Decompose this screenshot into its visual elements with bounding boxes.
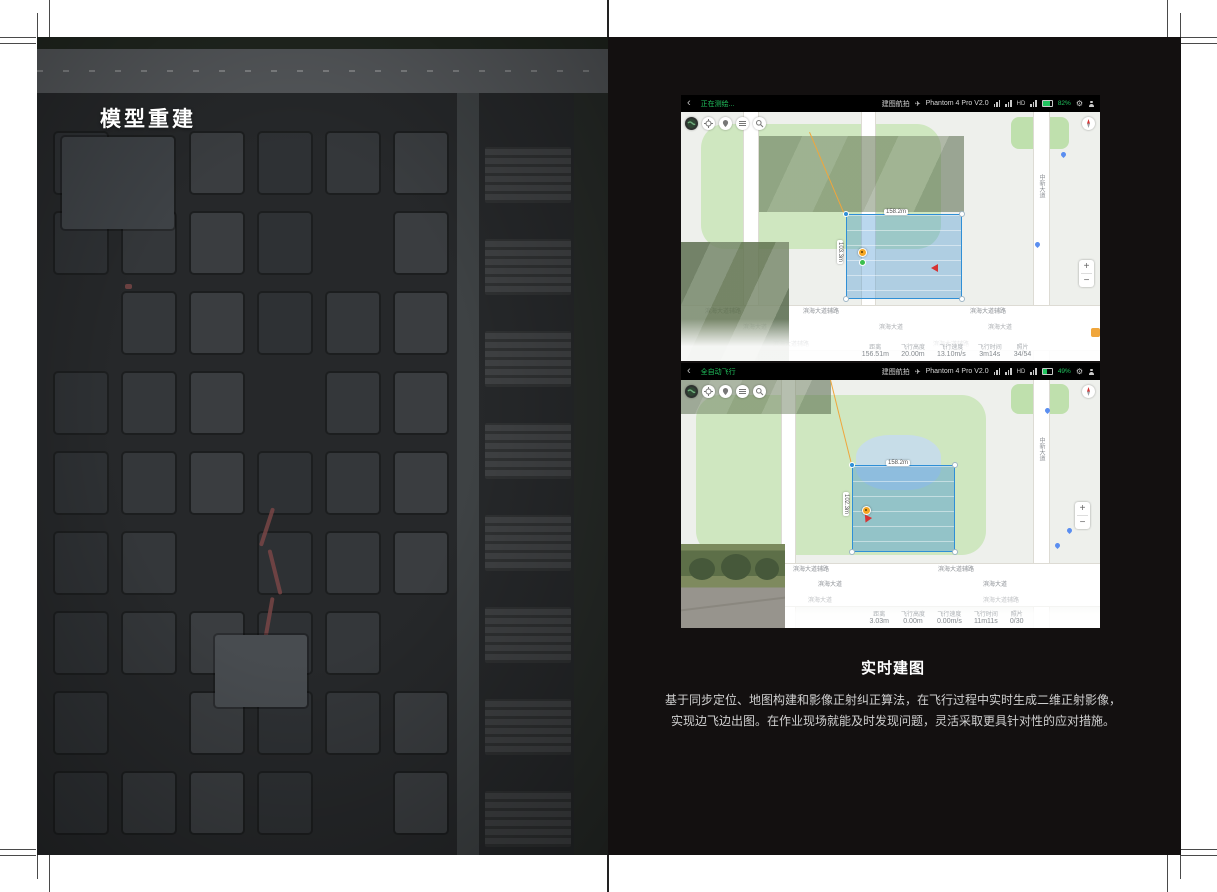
home-point-icon bbox=[859, 259, 866, 266]
poi-pin-icon bbox=[1054, 542, 1061, 549]
crop-mark bbox=[1181, 37, 1217, 38]
road-label: 滨海大道辅路 bbox=[791, 564, 831, 573]
survey-height-label: 102.3m bbox=[843, 492, 849, 516]
back-icon[interactable]: ‹ bbox=[687, 98, 691, 109]
account-icon[interactable] bbox=[1088, 101, 1094, 107]
aircraft-icon: ✈ bbox=[915, 368, 921, 376]
crop-mark bbox=[1181, 849, 1217, 850]
survey-height-label: 103.3m bbox=[837, 240, 843, 264]
map-toolbar bbox=[685, 385, 766, 398]
survey-corner-handle[interactable] bbox=[952, 549, 958, 555]
rc-signal-icon bbox=[1005, 100, 1012, 107]
locate-icon[interactable] bbox=[702, 385, 715, 398]
list-icon[interactable] bbox=[736, 117, 749, 130]
map-toolbar bbox=[685, 117, 766, 130]
mission-status: 全自动飞行 bbox=[701, 367, 736, 377]
mission-type-label: 建图航拍 bbox=[882, 99, 910, 109]
map-layers-icon[interactable] bbox=[685, 385, 698, 398]
aircraft-icon: ✈ bbox=[915, 100, 921, 108]
gps-signal-icon bbox=[994, 100, 1001, 107]
mission-type-label: 建图航拍 bbox=[882, 367, 910, 377]
right-panel: ‹ 正在测绘... 建图航拍 ✈ Phantom 4 Pro V2.0 HD 8… bbox=[608, 37, 1181, 855]
telemetry-item: 飞行速度0.00m/s bbox=[937, 609, 962, 625]
survey-corner-handle[interactable] bbox=[952, 462, 958, 468]
telemetry-item: 飞行高度0.00m bbox=[901, 609, 925, 625]
hd-signal-icon bbox=[1030, 100, 1037, 107]
telemetry-item: 照片0/30 bbox=[1010, 609, 1024, 625]
crop-mark bbox=[1181, 43, 1217, 44]
survey-corner-handle[interactable] bbox=[843, 296, 849, 302]
drone-marker-icon bbox=[862, 506, 871, 515]
battery-percent: 49% bbox=[1058, 368, 1071, 375]
app-topbar: ‹ 正在测绘... 建图航拍 ✈ Phantom 4 Pro V2.0 HD 8… bbox=[681, 95, 1100, 112]
compass-icon[interactable] bbox=[1082, 117, 1095, 130]
map-mode-button[interactable] bbox=[1091, 328, 1100, 337]
poi-pin-icon bbox=[1060, 151, 1067, 158]
fpv-camera-preview[interactable] bbox=[681, 544, 785, 628]
survey-corner-handle[interactable] bbox=[843, 211, 849, 217]
telemetry-item: 飞行时间3m14s bbox=[978, 342, 1002, 358]
telemetry-item: 距离156.51m bbox=[862, 342, 889, 358]
road-label: 中新大道 bbox=[1037, 435, 1046, 463]
battery-icon bbox=[1042, 100, 1053, 107]
telemetry-item: 照片34/54 bbox=[1014, 342, 1032, 358]
brochure-page: { "page": { "left_panel": { "title": "模型… bbox=[0, 0, 1217, 892]
survey-corner-handle[interactable] bbox=[959, 296, 965, 302]
survey-corner-handle[interactable] bbox=[849, 462, 855, 468]
search-icon[interactable] bbox=[753, 117, 766, 130]
drone-marker-icon bbox=[858, 248, 867, 257]
telemetry-bar: 距离156.51m 飞行高度20.00m 飞行速度13.10m/s 飞行时间3m… bbox=[799, 342, 1094, 358]
battery-icon bbox=[1042, 368, 1053, 375]
road-label: 中新大道 bbox=[1037, 172, 1046, 200]
left-page-title: 模型重建 bbox=[100, 103, 196, 133]
gps-signal-icon bbox=[994, 368, 1001, 375]
road-label: 滨海大道辅路 bbox=[936, 564, 976, 573]
map-view[interactable]: 中新大道 滨海大道辅路 滨海大道辅路 滨海大道 滨海大道 滨海大道 滨海大道辅路… bbox=[681, 380, 1100, 628]
hd-signal-icon bbox=[1030, 368, 1037, 375]
pin-icon[interactable] bbox=[719, 385, 732, 398]
telemetry-item: 飞行时间11m11s bbox=[974, 609, 998, 625]
survey-width-label: 158.2m bbox=[886, 460, 910, 466]
crop-mark bbox=[0, 855, 36, 856]
zoom-in-button[interactable]: + bbox=[1079, 260, 1094, 273]
road-label: 滨海大道辅路 bbox=[968, 306, 1008, 315]
aerial-photo: 模型重建 bbox=[37, 37, 608, 855]
crop-mark bbox=[0, 43, 36, 44]
topbar-right: 建图航拍 ✈ Phantom 4 Pro V2.0 HD 49% ⚙ bbox=[882, 367, 1094, 377]
telemetry-bar: 距离3.03m 飞行高度0.00m 飞行速度0.00m/s 飞行时间11m11s… bbox=[799, 609, 1094, 625]
hd-label: HD bbox=[1017, 101, 1026, 107]
crop-mark bbox=[0, 849, 36, 850]
caption-block: 实时建图 基于同步定位、地图构建和影像正射纠正算法，在飞行过程中实时生成二维正射… bbox=[643, 657, 1143, 732]
page-content: 模型重建 ‹ 正在测绘... 建图航拍 ✈ Phantom 4 Pro V2.0… bbox=[37, 37, 1181, 855]
waypoint-arrow-icon bbox=[931, 264, 938, 272]
pin-icon[interactable] bbox=[719, 117, 732, 130]
caption-body: 基于同步定位、地图构建和影像正射纠正算法，在飞行过程中实时生成二维正射影像， 实… bbox=[643, 690, 1143, 732]
app-screenshot-1: ‹ 正在测绘... 建图航拍 ✈ Phantom 4 Pro V2.0 HD 8… bbox=[681, 95, 1100, 361]
telemetry-item: 飞行高度20.00m bbox=[901, 342, 925, 358]
survey-corner-handle[interactable] bbox=[849, 549, 855, 555]
zoom-control: + − bbox=[1075, 502, 1090, 529]
hd-label: HD bbox=[1017, 369, 1026, 375]
list-icon[interactable] bbox=[736, 385, 749, 398]
road-label: 滨海大道辅路 bbox=[801, 306, 841, 315]
battery-percent: 82% bbox=[1058, 100, 1071, 107]
mission-status: 正在测绘... bbox=[701, 99, 735, 109]
settings-gear-icon[interactable]: ⚙ bbox=[1076, 100, 1083, 108]
crop-mark bbox=[0, 37, 36, 38]
telemetry-item: 飞行速度13.10m/s bbox=[937, 342, 966, 358]
settings-gear-icon[interactable]: ⚙ bbox=[1076, 368, 1083, 376]
device-name: Phantom 4 Pro V2.0 bbox=[926, 100, 989, 107]
telemetry-item: 距离3.03m bbox=[869, 609, 888, 625]
search-icon[interactable] bbox=[753, 385, 766, 398]
back-icon[interactable]: ‹ bbox=[687, 366, 691, 377]
device-name: Phantom 4 Pro V2.0 bbox=[926, 368, 989, 375]
zoom-control: + − bbox=[1079, 260, 1094, 287]
app-screenshot-2: ‹ 全自动飞行 建图航拍 ✈ Phantom 4 Pro V2.0 HD 49%… bbox=[681, 363, 1100, 628]
zoom-out-button[interactable]: − bbox=[1079, 274, 1094, 287]
map-view[interactable]: 中新大道 滨海大道辅路 滨海大道辅路 滨海大道辅路 滨海大道 滨海大道 滨海大道… bbox=[681, 112, 1100, 361]
map-layers-icon[interactable] bbox=[685, 117, 698, 130]
survey-corner-handle[interactable] bbox=[959, 211, 965, 217]
poi-pin-icon bbox=[1066, 527, 1073, 534]
zoom-out-button[interactable]: − bbox=[1075, 516, 1090, 529]
account-icon[interactable] bbox=[1088, 369, 1094, 375]
zoom-in-button[interactable]: + bbox=[1075, 502, 1090, 515]
topbar-right: 建图航拍 ✈ Phantom 4 Pro V2.0 HD 82% ⚙ bbox=[882, 99, 1094, 109]
caption-line-2: 实现边飞边出图。在作业现场就能及时发现问题，灵活采取更具针对性的应对措施。 bbox=[643, 711, 1143, 732]
rc-signal-icon bbox=[1005, 368, 1012, 375]
crop-mark bbox=[1181, 855, 1217, 856]
survey-width-label: 158.2m bbox=[884, 209, 908, 215]
locate-icon[interactable] bbox=[702, 117, 715, 130]
compass-icon[interactable] bbox=[1082, 385, 1095, 398]
caption-title: 实时建图 bbox=[643, 657, 1143, 678]
photo-vignette bbox=[37, 37, 608, 855]
caption-line-1: 基于同步定位、地图构建和影像正射纠正算法，在飞行过程中实时生成二维正射影像， bbox=[643, 690, 1143, 711]
orthomosaic-overlay bbox=[759, 136, 964, 212]
app-topbar: ‹ 全自动飞行 建图航拍 ✈ Phantom 4 Pro V2.0 HD 49%… bbox=[681, 363, 1100, 380]
